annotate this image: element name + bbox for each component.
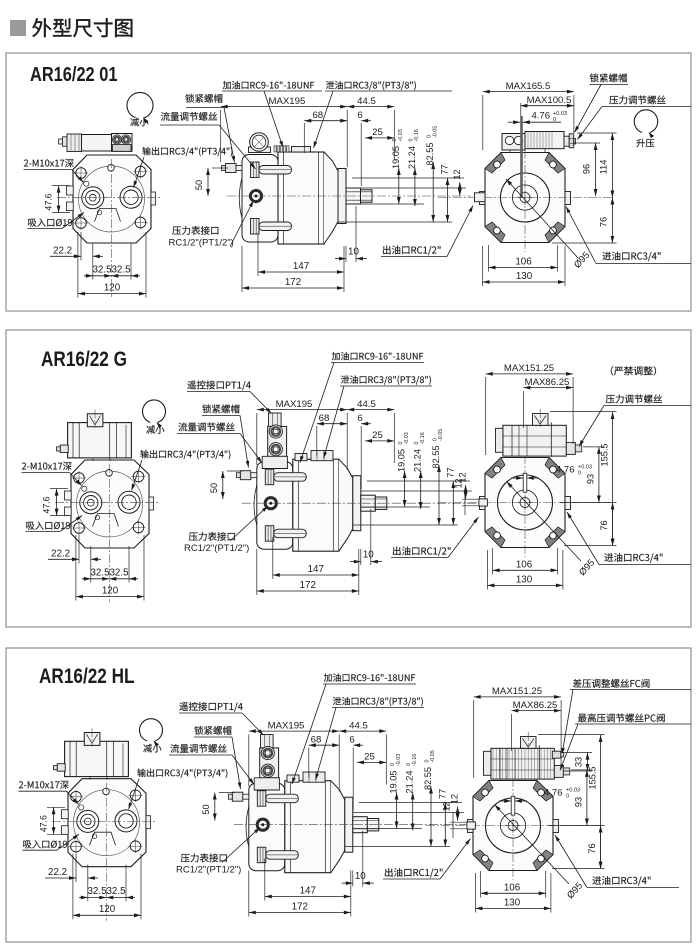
svg-text:106: 106 <box>516 559 533 570</box>
svg-text:172: 172 <box>300 580 316 591</box>
svg-text:21.24: 21.24 <box>413 449 423 472</box>
svg-text:32.5: 32.5 <box>109 567 129 578</box>
svg-text:106: 106 <box>515 256 532 267</box>
svg-text:77: 77 <box>445 467 455 477</box>
svg-text:32.5: 32.5 <box>111 264 131 275</box>
svg-text:44.5: 44.5 <box>357 96 376 107</box>
svg-text:RC1/2"(PT1/2"): RC1/2"(PT1/2") <box>184 543 249 554</box>
svg-text:MAX195: MAX195 <box>276 399 313 410</box>
svg-text:22.2: 22.2 <box>51 549 70 560</box>
svg-text:47.6: 47.6 <box>44 193 54 210</box>
svg-text:4.76: 4.76 <box>556 465 575 476</box>
svg-text:6: 6 <box>357 110 362 121</box>
svg-text:-0.05: -0.05 <box>438 429 444 441</box>
svg-text:MAX165.5: MAX165.5 <box>506 81 551 92</box>
svg-text:93: 93 <box>586 474 596 484</box>
svg-text:-0.16: -0.16 <box>414 129 420 141</box>
svg-text:76: 76 <box>599 520 609 530</box>
svg-text:76: 76 <box>599 217 609 227</box>
svg-text:MAX86.25: MAX86.25 <box>525 377 570 388</box>
svg-text:68: 68 <box>319 413 330 424</box>
svg-text:RC1/2"(PT1/2"): RC1/2"(PT1/2") <box>169 238 234 249</box>
svg-text:44.5: 44.5 <box>357 399 376 410</box>
svg-text:130: 130 <box>516 574 533 585</box>
svg-text:19.05: 19.05 <box>391 146 401 169</box>
svg-text:47.6: 47.6 <box>42 496 52 513</box>
svg-text:22.2: 22.2 <box>53 246 72 257</box>
svg-text:147: 147 <box>293 261 309 272</box>
svg-text:AR16/22 HL: AR16/22 HL <box>39 664 135 688</box>
svg-text:10: 10 <box>363 550 374 561</box>
svg-text:MAX100.5: MAX100.5 <box>527 95 572 106</box>
svg-text:4.76: 4.76 <box>532 111 551 122</box>
svg-text:120: 120 <box>102 586 119 597</box>
svg-text:-0.03: -0.03 <box>404 432 410 444</box>
svg-text:77: 77 <box>440 164 450 174</box>
svg-text:0: 0 <box>578 471 581 477</box>
svg-text:MAX195: MAX195 <box>269 96 306 107</box>
svg-text:25: 25 <box>372 127 383 138</box>
svg-text:82.55: 82.55 <box>425 143 435 166</box>
svg-text:68: 68 <box>312 110 323 121</box>
svg-text:172: 172 <box>285 277 301 288</box>
svg-text:50: 50 <box>194 180 204 190</box>
svg-text:-0.16: -0.16 <box>420 432 426 444</box>
svg-text:21.24: 21.24 <box>407 146 417 169</box>
svg-text:32.5: 32.5 <box>92 264 112 275</box>
svg-text:96: 96 <box>582 164 592 174</box>
svg-text:19.05: 19.05 <box>397 449 407 472</box>
svg-text:AR16/22 01: AR16/22 01 <box>30 62 117 85</box>
svg-text:6: 6 <box>357 413 362 424</box>
svg-text:10: 10 <box>348 247 359 258</box>
svg-text:-0.05: -0.05 <box>432 126 438 138</box>
svg-text:82.55: 82.55 <box>431 446 441 469</box>
svg-text:120: 120 <box>104 283 121 294</box>
svg-text:32.5: 32.5 <box>90 567 110 578</box>
svg-text:12: 12 <box>454 479 464 489</box>
svg-text:33: 33 <box>574 757 584 767</box>
svg-text:MAX151.25: MAX151.25 <box>504 363 554 374</box>
svg-text:-0.03: -0.03 <box>398 129 404 141</box>
svg-text:114: 114 <box>599 160 609 175</box>
svg-text:50: 50 <box>209 483 219 493</box>
svg-text:147: 147 <box>308 564 324 575</box>
svg-text:130: 130 <box>516 271 533 282</box>
svg-text:25: 25 <box>372 430 383 441</box>
svg-text:AR16/22 G: AR16/22 G <box>41 347 127 371</box>
